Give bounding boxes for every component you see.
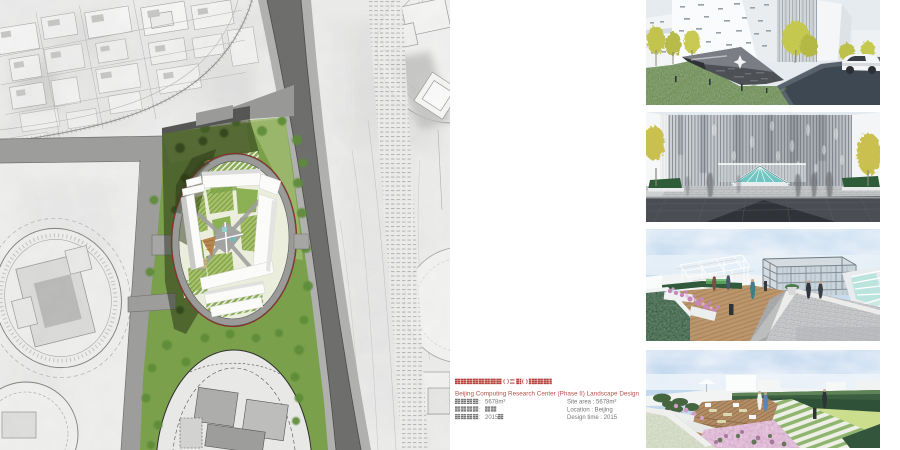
svg-text:Beijing Computing Research Cen: Beijing Computing Research Center (Phase…: [455, 390, 639, 397]
svg-text::: :: [479, 415, 481, 421]
svg-text::: :: [479, 400, 481, 406]
svg-text:Site area : 5678m²: Site area : 5678m²: [567, 400, 616, 406]
svg-text:Design time : 2015: Design time : 2015: [567, 415, 618, 421]
svg-text:Location : Beijing: Location : Beijing: [567, 407, 613, 413]
svg-text:2015: 2015: [485, 415, 499, 421]
svg-text::: :: [479, 407, 481, 413]
svg-text:5678m²: 5678m²: [485, 400, 505, 406]
